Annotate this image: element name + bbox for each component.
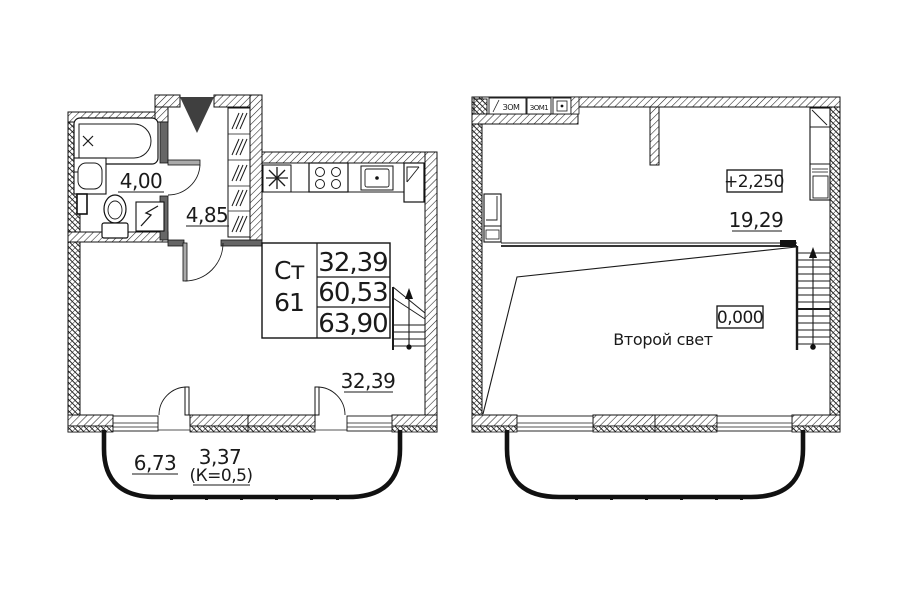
wall-segment [578, 97, 840, 107]
wall-segment [472, 97, 482, 432]
sink-icon [74, 158, 106, 194]
balcony [507, 430, 803, 500]
closet-unit: ЗОМ [489, 98, 526, 114]
vent-icon [263, 165, 291, 192]
kitchen-counter [262, 163, 425, 202]
wall-segment [472, 114, 578, 124]
mezzanine-edge [501, 240, 797, 247]
area-with-balcony-value: 63,90 [318, 309, 387, 339]
wardrobe-icon [228, 108, 250, 237]
staircase [393, 287, 425, 350]
towel-rail-icon [77, 194, 87, 214]
area-living-value: 32,39 [318, 248, 387, 278]
wall-segment [68, 415, 113, 426]
unit-info-table: Ст 61 32,39 60,53 63,90 [262, 243, 390, 339]
unit-number-label: 61 [274, 288, 304, 317]
wall-segment [190, 426, 315, 432]
shaft-icon [474, 99, 487, 114]
room-area-label: 32,39 [341, 369, 396, 393]
mezzanine-area-label: 19,29 [729, 208, 784, 232]
wall-segment [571, 97, 579, 114]
closet-label: ЗОМ1 [530, 104, 549, 112]
bathroom-area-label: 4,00 [120, 169, 163, 193]
wall-segment [792, 426, 840, 432]
double-height-label: Второй свет [613, 330, 713, 349]
window [347, 416, 392, 431]
window [113, 416, 158, 431]
hall-area-label: 4,85 [186, 203, 229, 227]
closet-label: ЗОМ [503, 103, 520, 112]
partition-wall [168, 240, 184, 246]
wall-segment [262, 152, 437, 163]
elevation-mark-lower: 0,000 [717, 306, 763, 328]
wall-segment [472, 426, 517, 432]
hall-room-door [183, 243, 223, 281]
electrical-panel-icon [136, 202, 164, 231]
right-wall-closet [810, 108, 830, 200]
balcony-coefficient-label: (К=0,5) [189, 466, 252, 486]
area-total-value: 60,53 [318, 278, 387, 308]
partition-wall [221, 240, 262, 246]
wall-segment [792, 415, 840, 426]
bathroom-door [168, 160, 200, 195]
wall-segment [425, 152, 437, 432]
beam-mark [780, 240, 796, 247]
stair-direction-arrow [405, 288, 413, 299]
wall-segment [190, 415, 315, 426]
wall-segment [155, 95, 180, 107]
balcony-area-label: 6,73 [134, 451, 177, 475]
closet-unit [553, 98, 571, 114]
entrance-arrow-icon [180, 97, 214, 133]
stove-icon [309, 163, 348, 192]
closet-row: ЗОМ ЗОМ1 [474, 97, 579, 114]
elevation-lower-value: 0,000 [717, 308, 763, 328]
wall-segment [392, 415, 437, 426]
floor-plan-drawing: Ст 61 32,39 60,53 63,90 4,00 4,85 32,39 … [0, 0, 900, 600]
floor-plan-canvas: Ст 61 32,39 60,53 63,90 4,00 4,85 32,39 … [0, 0, 900, 600]
right-plan: ЗОМ ЗОМ1 [472, 97, 840, 500]
staircase [797, 246, 830, 350]
left-plan: Ст 61 32,39 60,53 63,90 4,00 4,85 32,39 … [68, 95, 437, 500]
toilet-icon [102, 195, 128, 238]
fridge-icon [404, 163, 424, 202]
wall-segment [472, 415, 517, 426]
closet-unit: ЗОМ1 [527, 98, 551, 114]
elevation-upper-value: +2,250 [724, 172, 784, 192]
wall-segment [250, 95, 262, 240]
left-wall-fixture [484, 194, 501, 242]
unit-type-label: Ст [274, 256, 304, 285]
wall-segment [650, 107, 659, 165]
window [517, 416, 593, 431]
wall-segment [830, 97, 840, 432]
partition-wall [160, 122, 168, 163]
balcony-door-left [159, 387, 189, 415]
bathtub-icon [74, 118, 158, 164]
elevation-mark-upper: +2,250 [724, 170, 784, 192]
kitchen-sink-icon [361, 166, 393, 190]
stair-direction-arrow [809, 247, 817, 258]
right-plan-walls [472, 97, 840, 432]
window [717, 416, 792, 431]
